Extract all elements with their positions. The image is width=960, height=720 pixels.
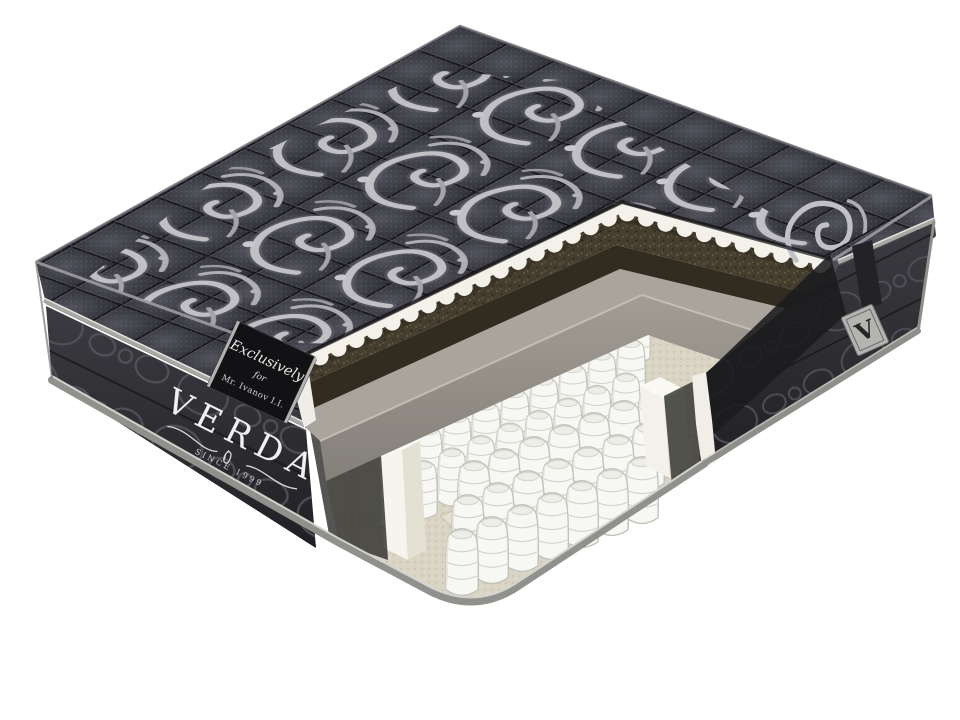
mattress-product-image: Exclusively for Mr. Ivanov I.I. VERDA SI… bbox=[0, 0, 960, 720]
pocket-spring bbox=[446, 529, 479, 596]
pocket-spring bbox=[506, 505, 539, 572]
mattress-cutaway-illustration: Exclusively for Mr. Ivanov I.I. VERDA SI… bbox=[0, 0, 960, 720]
pocket-spring bbox=[536, 493, 569, 560]
pocket-spring bbox=[476, 517, 509, 584]
